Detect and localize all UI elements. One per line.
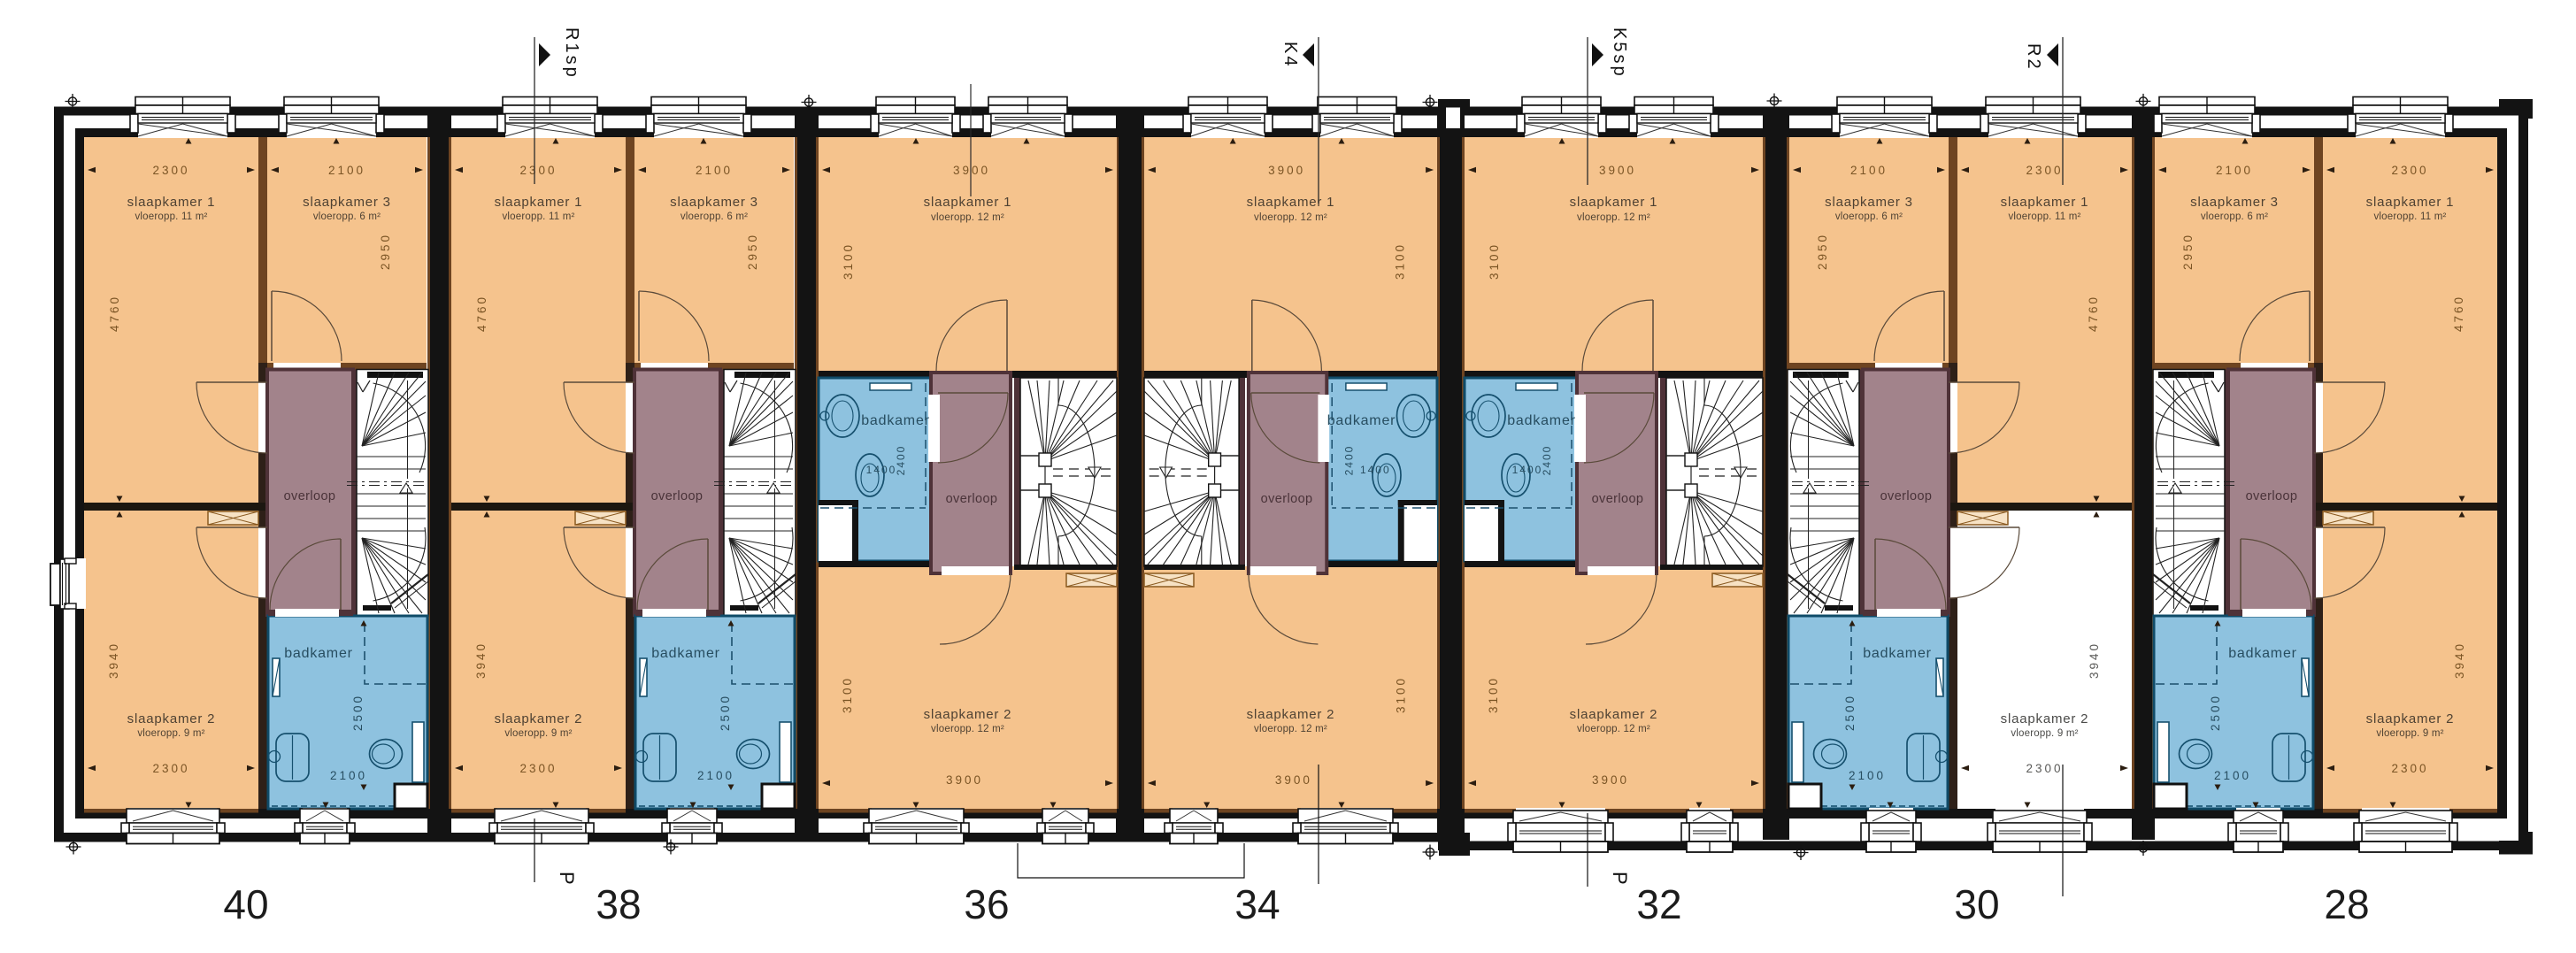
svg-text:30: 30 bbox=[1954, 881, 1999, 927]
svg-text:2950: 2950 bbox=[379, 233, 392, 270]
svg-text:2100: 2100 bbox=[2214, 769, 2251, 782]
svg-text:slaapkamer 3: slaapkamer 3 bbox=[670, 195, 758, 210]
svg-text:slaapkamer 2: slaapkamer 2 bbox=[127, 711, 216, 726]
svg-text:slaapkamer 3: slaapkamer 3 bbox=[1825, 195, 1913, 210]
svg-text:28: 28 bbox=[2324, 881, 2369, 927]
svg-text:overloop: overloop bbox=[2246, 489, 2298, 503]
svg-text:2300: 2300 bbox=[519, 164, 557, 177]
svg-text:P: P bbox=[556, 872, 578, 885]
svg-text:slaapkamer 1: slaapkamer 1 bbox=[1570, 195, 1658, 210]
svg-text:vloeropp. 11 m²: vloeropp. 11 m² bbox=[135, 211, 207, 222]
svg-text:1400: 1400 bbox=[1512, 464, 1543, 476]
svg-text:vloeropp. 9 m²: vloeropp. 9 m² bbox=[2011, 728, 2078, 739]
svg-text:2950: 2950 bbox=[746, 233, 759, 270]
svg-text:R2: R2 bbox=[2024, 43, 2043, 72]
svg-text:2300: 2300 bbox=[519, 762, 557, 775]
svg-text:overloop: overloop bbox=[1880, 489, 1933, 503]
svg-text:slaapkamer 1: slaapkamer 1 bbox=[924, 195, 1012, 210]
svg-text:vloeropp. 6 m²: vloeropp. 6 m² bbox=[1835, 211, 1903, 222]
svg-text:K4: K4 bbox=[1280, 42, 1300, 68]
svg-text:3940: 3940 bbox=[474, 642, 488, 679]
svg-text:vloeropp. 6 m²: vloeropp. 6 m² bbox=[2201, 211, 2268, 222]
svg-text:slaapkamer 2: slaapkamer 2 bbox=[924, 707, 1012, 722]
svg-text:3100: 3100 bbox=[1487, 676, 1500, 713]
svg-text:vloeropp. 11 m²: vloeropp. 11 m² bbox=[502, 211, 574, 222]
svg-text:vloeropp. 9 m²: vloeropp. 9 m² bbox=[2376, 728, 2443, 739]
svg-text:2100: 2100 bbox=[328, 164, 365, 177]
svg-text:2100: 2100 bbox=[696, 164, 733, 177]
svg-text:slaapkamer 2: slaapkamer 2 bbox=[1570, 707, 1658, 722]
svg-text:P: P bbox=[1609, 872, 1631, 885]
svg-text:slaapkamer 1: slaapkamer 1 bbox=[127, 195, 216, 210]
svg-text:overloop: overloop bbox=[1261, 492, 1313, 506]
svg-text:2100: 2100 bbox=[697, 769, 734, 782]
svg-text:2300: 2300 bbox=[152, 164, 189, 177]
svg-text:2950: 2950 bbox=[2181, 233, 2195, 270]
svg-text:vloeropp. 9 m²: vloeropp. 9 m² bbox=[504, 728, 572, 739]
svg-text:badkamer: badkamer bbox=[1863, 646, 1932, 661]
svg-text:3900: 3900 bbox=[1599, 164, 1636, 177]
svg-text:36: 36 bbox=[964, 881, 1009, 927]
svg-text:badkamer: badkamer bbox=[861, 413, 930, 428]
svg-text:2300: 2300 bbox=[2026, 762, 2063, 775]
svg-text:vloeropp. 12 m²: vloeropp. 12 m² bbox=[1254, 724, 1327, 734]
svg-text:34: 34 bbox=[1234, 881, 1280, 927]
svg-text:2100: 2100 bbox=[1850, 164, 1888, 177]
svg-text:badkamer: badkamer bbox=[2228, 646, 2297, 661]
svg-text:4760: 4760 bbox=[2452, 295, 2465, 332]
svg-text:2400: 2400 bbox=[1541, 445, 1553, 476]
svg-text:overloop: overloop bbox=[651, 489, 704, 503]
svg-text:3900: 3900 bbox=[1592, 773, 1629, 787]
svg-text:vloeropp. 9 m²: vloeropp. 9 m² bbox=[137, 728, 204, 739]
svg-text:slaapkamer 2: slaapkamer 2 bbox=[2366, 711, 2455, 726]
svg-text:2300: 2300 bbox=[2391, 164, 2428, 177]
svg-text:2500: 2500 bbox=[719, 694, 732, 731]
svg-text:2300: 2300 bbox=[152, 762, 189, 775]
svg-text:slaapkamer 3: slaapkamer 3 bbox=[2190, 195, 2279, 210]
svg-text:2300: 2300 bbox=[2026, 164, 2063, 177]
svg-text:38: 38 bbox=[596, 881, 641, 927]
svg-text:1400: 1400 bbox=[866, 464, 897, 476]
svg-text:2400: 2400 bbox=[895, 445, 907, 476]
svg-text:1400: 1400 bbox=[1360, 464, 1391, 476]
svg-text:3900: 3900 bbox=[953, 164, 990, 177]
svg-text:2100: 2100 bbox=[1849, 769, 1886, 782]
svg-text:2500: 2500 bbox=[351, 694, 365, 731]
svg-text:3940: 3940 bbox=[107, 642, 120, 679]
svg-text:slaapkamer 1: slaapkamer 1 bbox=[495, 195, 583, 210]
svg-text:3940: 3940 bbox=[2453, 642, 2466, 679]
svg-text:badkamer: badkamer bbox=[651, 646, 720, 661]
svg-text:2500: 2500 bbox=[2209, 694, 2222, 731]
svg-text:slaapkamer 1: slaapkamer 1 bbox=[2001, 195, 2089, 210]
svg-text:2950: 2950 bbox=[1816, 233, 1829, 270]
svg-text:vloeropp. 11 m²: vloeropp. 11 m² bbox=[2008, 211, 2080, 222]
svg-text:K5sp: K5sp bbox=[1610, 27, 1629, 79]
svg-text:3900: 3900 bbox=[1275, 773, 1312, 787]
svg-text:slaapkamer 2: slaapkamer 2 bbox=[495, 711, 583, 726]
svg-text:vloeropp. 11 m²: vloeropp. 11 m² bbox=[2373, 211, 2446, 222]
svg-text:2100: 2100 bbox=[2216, 164, 2253, 177]
svg-text:badkamer: badkamer bbox=[1327, 413, 1396, 428]
svg-text:badkamer: badkamer bbox=[1507, 413, 1576, 428]
svg-text:32: 32 bbox=[1636, 881, 1681, 927]
svg-text:2300: 2300 bbox=[2391, 762, 2428, 775]
svg-text:3100: 3100 bbox=[1394, 242, 1407, 280]
svg-text:4760: 4760 bbox=[475, 295, 488, 332]
svg-text:4760: 4760 bbox=[108, 295, 121, 332]
svg-text:3900: 3900 bbox=[1268, 164, 1305, 177]
svg-text:vloeropp. 12 m²: vloeropp. 12 m² bbox=[931, 724, 1004, 734]
svg-text:slaapkamer 2: slaapkamer 2 bbox=[1247, 707, 1335, 722]
svg-text:4760: 4760 bbox=[2087, 295, 2100, 332]
svg-text:vloeropp. 12 m²: vloeropp. 12 m² bbox=[1254, 212, 1327, 223]
svg-text:slaapkamer 1: slaapkamer 1 bbox=[1247, 195, 1335, 210]
svg-text:overloop: overloop bbox=[1592, 492, 1644, 506]
svg-text:3100: 3100 bbox=[841, 676, 854, 713]
svg-text:3100: 3100 bbox=[842, 242, 855, 280]
svg-text:2500: 2500 bbox=[1843, 694, 1857, 731]
svg-text:overloop: overloop bbox=[284, 489, 336, 503]
svg-text:slaapkamer 2: slaapkamer 2 bbox=[2001, 711, 2089, 726]
svg-text:3900: 3900 bbox=[946, 773, 983, 787]
svg-text:vloeropp. 12 m²: vloeropp. 12 m² bbox=[931, 212, 1004, 223]
svg-text:vloeropp. 6 m²: vloeropp. 6 m² bbox=[681, 211, 748, 222]
svg-text:3100: 3100 bbox=[1395, 676, 1408, 713]
svg-text:vloeropp. 12 m²: vloeropp. 12 m² bbox=[1577, 212, 1650, 223]
svg-text:slaapkamer 1: slaapkamer 1 bbox=[2366, 195, 2455, 210]
svg-text:vloeropp. 12 m²: vloeropp. 12 m² bbox=[1577, 724, 1650, 734]
svg-text:slaapkamer 3: slaapkamer 3 bbox=[303, 195, 391, 210]
svg-text:3940: 3940 bbox=[2088, 642, 2101, 679]
svg-text:40: 40 bbox=[223, 881, 268, 927]
svg-text:vloeropp. 6 m²: vloeropp. 6 m² bbox=[313, 211, 381, 222]
svg-text:R1sp: R1sp bbox=[562, 27, 581, 80]
svg-text:badkamer: badkamer bbox=[284, 646, 353, 661]
svg-text:3100: 3100 bbox=[1488, 242, 1501, 280]
svg-text:2100: 2100 bbox=[330, 769, 367, 782]
svg-text:overloop: overloop bbox=[946, 492, 998, 506]
svg-text:2400: 2400 bbox=[1343, 445, 1356, 476]
